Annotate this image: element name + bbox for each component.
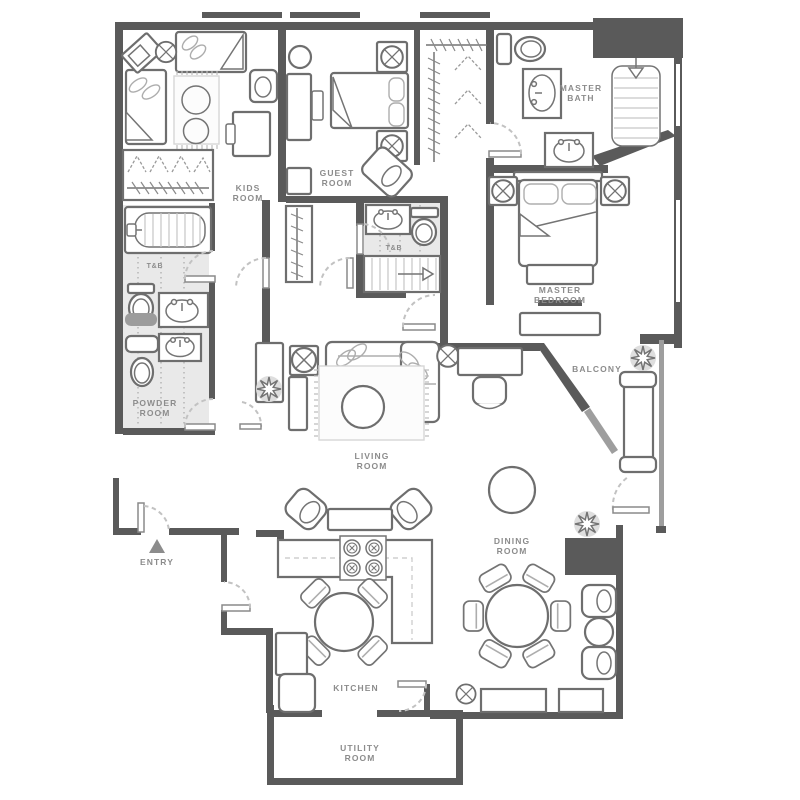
kids-room-label-2: ROOM	[233, 193, 264, 203]
lounge-console	[328, 509, 392, 530]
guest-bed	[331, 73, 408, 128]
kitchen-cabinet	[279, 674, 315, 712]
kids-closet	[123, 150, 213, 200]
master-lamp-left-icon	[492, 180, 514, 202]
hall-door-leaf	[240, 424, 261, 429]
master-bath-label-2: BATH	[567, 93, 594, 103]
dining-room-label: DINING	[494, 536, 530, 546]
balcony-label: BALCONY	[572, 364, 622, 374]
room-living: LIVING ROOM	[256, 295, 522, 533]
walk-in-closet	[426, 39, 487, 162]
balcony: BALCONY	[572, 345, 656, 513]
floor-plan-svg: KIDS ROOM T&B	[0, 0, 800, 800]
entry-door-swing	[144, 506, 169, 531]
master-dresser	[520, 313, 600, 335]
powder-vanity	[159, 334, 201, 361]
ottoman	[585, 618, 613, 646]
tb-guest-label: T&B	[386, 245, 403, 252]
living-door-leaf	[403, 324, 435, 330]
living-lamp-left-icon	[292, 348, 316, 372]
utility-room-label: UTILITY	[340, 743, 380, 753]
master-toilet	[497, 34, 545, 64]
tb-main-label: T&B	[147, 263, 164, 270]
hall-closet-door-leaf	[347, 258, 353, 288]
window-right-bath	[676, 64, 680, 126]
round-side-table	[489, 467, 535, 513]
master-vanity-1	[523, 69, 561, 118]
lounge-chair-left	[282, 485, 330, 533]
master-bedroom-label-2: BEDROOM	[534, 295, 586, 305]
kids-chair	[250, 70, 277, 102]
kitchen-door-swing	[224, 582, 250, 608]
bath-mat	[125, 313, 157, 326]
dining-room-label-2: ROOM	[497, 546, 528, 556]
sideboard-left	[481, 689, 546, 712]
room-master-bedroom: MASTER BEDROOM	[489, 172, 629, 335]
balcony-door-leaf	[613, 507, 649, 513]
utility-door-leaf	[398, 681, 426, 687]
stool-lamp-icon	[156, 42, 176, 62]
living-shelf	[289, 377, 307, 430]
entry-label: ENTRY	[140, 557, 174, 567]
master-bath-door-leaf	[489, 151, 521, 157]
kids-rug	[174, 71, 219, 149]
tb-door-leaf	[185, 276, 215, 282]
living-lamp-right-icon	[437, 345, 459, 367]
dining-armchair-bottom	[582, 647, 616, 679]
hall-closet-door-swing	[320, 258, 350, 288]
guest-room-label: GUEST	[320, 168, 355, 178]
balcony-door-swing	[613, 477, 628, 510]
lounge-chair-right	[387, 485, 435, 533]
desk-chair	[473, 377, 506, 409]
walk-in-shower	[612, 58, 660, 146]
stove	[340, 536, 386, 580]
balcony-plant-icon	[630, 345, 656, 371]
breakfast-table	[299, 577, 390, 668]
kitchen-door-leaf	[222, 605, 250, 611]
twin-bed-vertical	[126, 70, 166, 144]
master-bath-door-swing	[490, 123, 521, 154]
balcony-table	[620, 372, 656, 472]
powder-room-label: POWDER	[133, 398, 178, 408]
living-room-label-2: ROOM	[357, 461, 388, 471]
window-top-guest	[290, 12, 360, 18]
master-vanity-2	[545, 133, 593, 167]
window-top-closet	[420, 12, 490, 18]
linen-closet	[286, 206, 312, 282]
dining-armchair-top	[582, 585, 616, 617]
kids-room-label: KIDS	[236, 183, 261, 193]
kitchen-label: KITCHEN	[333, 683, 378, 693]
living-door-swing	[403, 295, 435, 327]
entry: ENTRY	[138, 503, 174, 567]
utility-door-swing	[399, 684, 426, 711]
coffee-table	[342, 386, 384, 428]
utility-room-label-2: ROOM	[345, 753, 376, 763]
guest-lamp-top-icon	[381, 46, 403, 68]
vanity-sink	[159, 293, 208, 327]
living-room-label: LIVING	[355, 451, 390, 461]
guest-desk	[287, 46, 323, 140]
dining-table	[464, 562, 571, 669]
entry-door-leaf	[138, 503, 144, 532]
master-lamp-right-icon	[604, 180, 626, 202]
dark-cabinet	[565, 538, 622, 575]
window-right-bedroom	[676, 200, 680, 302]
guest-bath-toilet	[411, 208, 438, 245]
room-guest: GUEST ROOM	[287, 42, 415, 199]
guest-bath-vanity	[366, 205, 410, 234]
dining-plant-icon	[574, 511, 600, 537]
bathtub	[125, 207, 211, 253]
kids-desk	[226, 112, 270, 156]
living-desk	[458, 348, 522, 375]
powder-room-label-2: ROOM	[140, 408, 171, 418]
floor-plan: KIDS ROOM T&B	[0, 0, 800, 800]
balcony-diagonal-wall	[535, 343, 590, 412]
master-bath-label: MASTER	[560, 83, 603, 93]
powder-door-leaf	[185, 424, 215, 430]
living-plant-icon	[256, 376, 282, 402]
bed-bench	[527, 265, 593, 284]
room-dining: DINING ROOM	[456, 467, 622, 712]
sideboard-right	[559, 689, 603, 712]
room-utility: UTILITY ROOM	[340, 681, 426, 763]
master-bed	[514, 172, 602, 266]
kids-door-swing	[236, 258, 266, 288]
master-bedroom-label: MASTER	[539, 285, 582, 295]
balcony-rail	[659, 340, 664, 530]
dining-lamp-icon	[456, 684, 475, 703]
refrigerator	[276, 633, 307, 675]
guest-bath-door-leaf	[357, 224, 363, 254]
entry-triangle-icon	[149, 539, 165, 553]
kids-door-leaf	[263, 258, 269, 288]
balcony-sliding-door	[584, 408, 618, 454]
twin-bed-horizontal	[176, 32, 246, 72]
room-kids: KIDS ROOM	[121, 32, 277, 203]
window-top-kids	[202, 12, 282, 18]
steps	[364, 256, 440, 292]
guest-room-label-2: ROOM	[322, 178, 353, 188]
guest-cabinet	[287, 168, 311, 194]
